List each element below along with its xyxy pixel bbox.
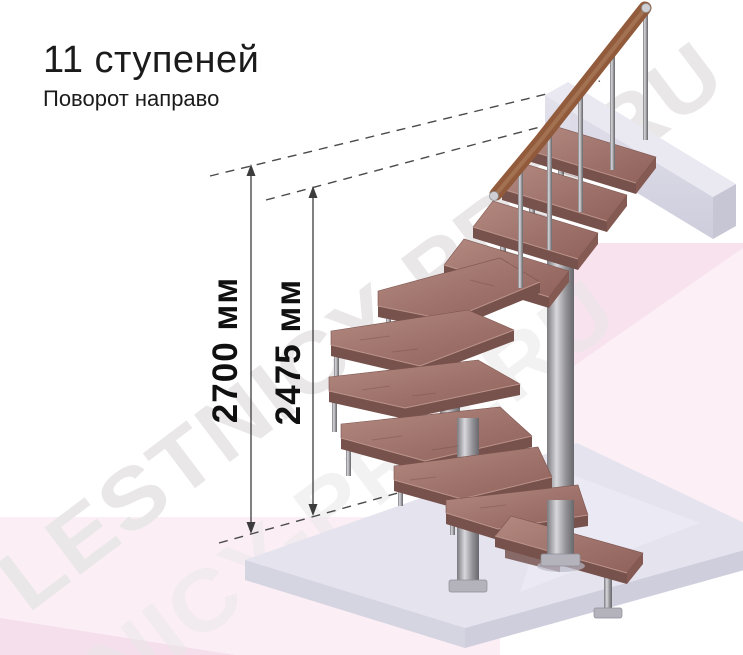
- dimension-label-2475: 2475 мм: [269, 279, 308, 425]
- winder-column-base-plate: [449, 580, 487, 592]
- staircase-diagram-page: LESTNICY-PRO.RU LESTNICY-PRO.RU: [0, 0, 743, 655]
- handrail-end-cap: [490, 192, 499, 201]
- baluster: [518, 163, 523, 288]
- step-post-base-plate: [594, 608, 622, 618]
- baluster: [643, 12, 648, 140]
- handrail-top-cap: [642, 4, 651, 13]
- central-column-lower: [547, 500, 574, 558]
- page-title: 11 ступеней: [43, 40, 259, 80]
- dimension-arrow-up: [309, 186, 318, 198]
- baluster: [547, 127, 552, 250]
- dimension-arrow-up: [247, 164, 256, 176]
- page-subtitle: Поворот направо: [43, 87, 259, 111]
- central-column-base-plate: [541, 554, 580, 566]
- dimension-label-2700: 2700 мм: [206, 277, 245, 423]
- baluster: [610, 48, 615, 170]
- heading-block: 11 ступеней Поворот направо: [43, 40, 259, 111]
- baluster: [578, 88, 583, 212]
